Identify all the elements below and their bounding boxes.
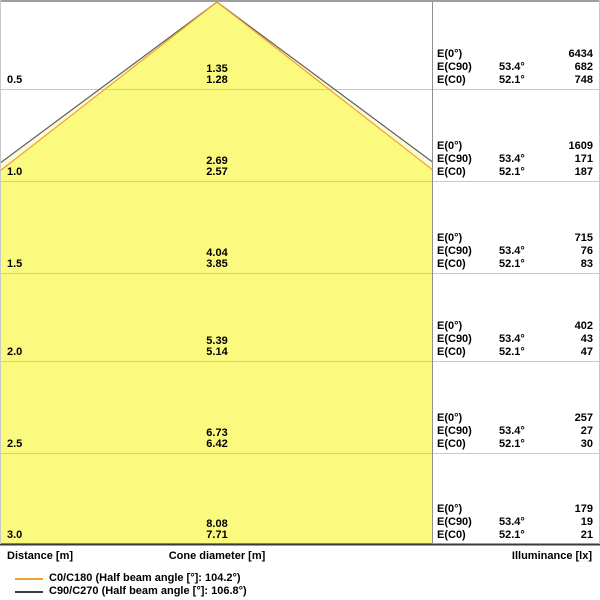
ec90-value: 682 xyxy=(549,61,593,74)
illuminance-table: E(0°)1609 E(C90)53.4°171 E(C0)52.1°187 xyxy=(437,140,593,179)
ec90-label: E(C90) xyxy=(437,425,499,438)
legend-item-c0-c180: C0/C180 (Half beam angle [°]: 104.2°) xyxy=(15,572,247,585)
e0-value: 257 xyxy=(549,412,593,425)
table-row: E(C0)52.1°83 xyxy=(437,258,593,271)
cone-diameter-values: 5.39 5.14 xyxy=(0,336,434,358)
legend: C0/C180 (Half beam angle [°]: 104.2°) C9… xyxy=(15,572,247,598)
ec90-value: 19 xyxy=(549,516,593,529)
illuminance-table: E(0°)402 E(C90)53.4°43 E(C0)52.1°47 xyxy=(437,320,593,359)
ec0-angle: 52.1° xyxy=(499,74,549,87)
e0-value: 715 xyxy=(549,232,593,245)
ec90-angle: 53.4° xyxy=(499,61,549,74)
ec0-angle: 52.1° xyxy=(499,438,549,451)
table-row: E(0°)179 xyxy=(437,503,593,516)
ec90-angle: 53.4° xyxy=(499,333,549,346)
e0-value: 402 xyxy=(549,320,593,333)
axis-labels-row: Distance [m] Cone diameter [m] Illuminan… xyxy=(0,550,600,562)
ec0-value: 83 xyxy=(549,258,593,271)
table-row: E(C0)52.1°748 xyxy=(437,74,593,87)
table-row: E(0°)715 xyxy=(437,232,593,245)
ec0-value: 187 xyxy=(549,166,593,179)
cone-diameter-c0: 5.14 xyxy=(0,347,434,358)
e0-angle xyxy=(499,140,549,153)
e0-label: E(0°) xyxy=(437,320,499,333)
table-row: E(C0)52.1°187 xyxy=(437,166,593,179)
e0-label: E(0°) xyxy=(437,503,499,516)
cone-diameter-values: 2.69 2.57 xyxy=(0,156,434,178)
cone-diameter-c0: 2.57 xyxy=(0,167,434,178)
e0-label: E(0°) xyxy=(437,48,499,61)
cone-diameter-values: 4.04 3.85 xyxy=(0,248,434,270)
ec90-value: 27 xyxy=(549,425,593,438)
e0-value: 6434 xyxy=(549,48,593,61)
ec0-label: E(C0) xyxy=(437,438,499,451)
ec90-angle: 53.4° xyxy=(499,153,549,166)
ec0-angle: 52.1° xyxy=(499,346,549,359)
table-row: E(C90)53.4°76 xyxy=(437,245,593,258)
ec90-value: 76 xyxy=(549,245,593,258)
e0-label: E(0°) xyxy=(437,232,499,245)
cone-diameter-c0: 3.85 xyxy=(0,259,434,270)
ec90-angle: 53.4° xyxy=(499,425,549,438)
e0-angle xyxy=(499,412,549,425)
cone-diameter-c0: 1.28 xyxy=(0,75,434,86)
ec0-label: E(C0) xyxy=(437,258,499,271)
ec0-value: 47 xyxy=(549,346,593,359)
cone-diameter-values: 6.73 6.42 xyxy=(0,428,434,450)
table-row: E(0°)402 xyxy=(437,320,593,333)
ec0-label: E(C0) xyxy=(437,529,499,542)
cone-diameter-c0: 6.42 xyxy=(0,439,434,450)
illuminance-table: E(0°)179 E(C90)53.4°19 E(C0)52.1°21 xyxy=(437,503,593,542)
ec0-angle: 52.1° xyxy=(499,529,549,542)
table-row: E(C90)53.4°43 xyxy=(437,333,593,346)
ec0-value: 30 xyxy=(549,438,593,451)
e0-value: 1609 xyxy=(549,140,593,153)
legend-label-c0-c180: C0/C180 (Half beam angle [°]: 104.2°) xyxy=(49,572,241,585)
e0-label: E(0°) xyxy=(437,140,499,153)
ec0-angle: 52.1° xyxy=(499,166,549,179)
ec90-label: E(C90) xyxy=(437,516,499,529)
e0-angle xyxy=(499,232,549,245)
c0-c180-line-swatch xyxy=(15,578,43,580)
table-row: E(C0)52.1°21 xyxy=(437,529,593,542)
e0-angle xyxy=(499,320,549,333)
table-row: E(C90)53.4°171 xyxy=(437,153,593,166)
ec0-value: 21 xyxy=(549,529,593,542)
ec90-value: 43 xyxy=(549,333,593,346)
illuminance-table: E(0°)6434 E(C90)53.4°682 E(C0)52.1°748 xyxy=(437,48,593,87)
axis-label-cone-diameter: Cone diameter [m] xyxy=(0,550,434,562)
ec0-value: 748 xyxy=(549,74,593,87)
e0-angle xyxy=(499,48,549,61)
e0-angle xyxy=(499,503,549,516)
ec90-label: E(C90) xyxy=(437,245,499,258)
ec0-angle: 52.1° xyxy=(499,258,549,271)
e0-label: E(0°) xyxy=(437,412,499,425)
table-row: E(C0)52.1°47 xyxy=(437,346,593,359)
e0-value: 179 xyxy=(549,503,593,516)
ec90-value: 171 xyxy=(549,153,593,166)
cone-diagram-panel: 0.5 1.35 1.28 E(0°)6434 E(C90)53.4°682 E… xyxy=(0,0,600,600)
legend-label-c90-c270: C90/C270 (Half beam angle [°]: 106.8°) xyxy=(49,585,247,598)
table-row: E(0°)6434 xyxy=(437,48,593,61)
table-row: E(C90)53.4°682 xyxy=(437,61,593,74)
ec90-label: E(C90) xyxy=(437,333,499,346)
axis-label-illuminance: Illuminance [lx] xyxy=(512,550,592,562)
table-row: E(C0)52.1°30 xyxy=(437,438,593,451)
table-row: E(C90)53.4°27 xyxy=(437,425,593,438)
legend-item-c90-c270: C90/C270 (Half beam angle [°]: 106.8°) xyxy=(15,585,247,598)
ec0-label: E(C0) xyxy=(437,346,499,359)
c90-c270-line-swatch xyxy=(15,591,43,593)
illuminance-table: E(0°)257 E(C90)53.4°27 E(C0)52.1°30 xyxy=(437,412,593,451)
ec90-label: E(C90) xyxy=(437,153,499,166)
cone-diameter-values: 1.35 1.28 xyxy=(0,64,434,86)
cone-diameter-c0: 7.71 xyxy=(0,530,434,541)
ec90-label: E(C90) xyxy=(437,61,499,74)
table-row: E(C90)53.4°19 xyxy=(437,516,593,529)
ec0-label: E(C0) xyxy=(437,74,499,87)
ec90-angle: 53.4° xyxy=(499,516,549,529)
cone-diameter-values: 8.08 7.71 xyxy=(0,519,434,541)
illuminance-table: E(0°)715 E(C90)53.4°76 E(C0)52.1°83 xyxy=(437,232,593,271)
table-row: E(0°)1609 xyxy=(437,140,593,153)
ec90-angle: 53.4° xyxy=(499,245,549,258)
ec0-label: E(C0) xyxy=(437,166,499,179)
table-row: E(0°)257 xyxy=(437,412,593,425)
